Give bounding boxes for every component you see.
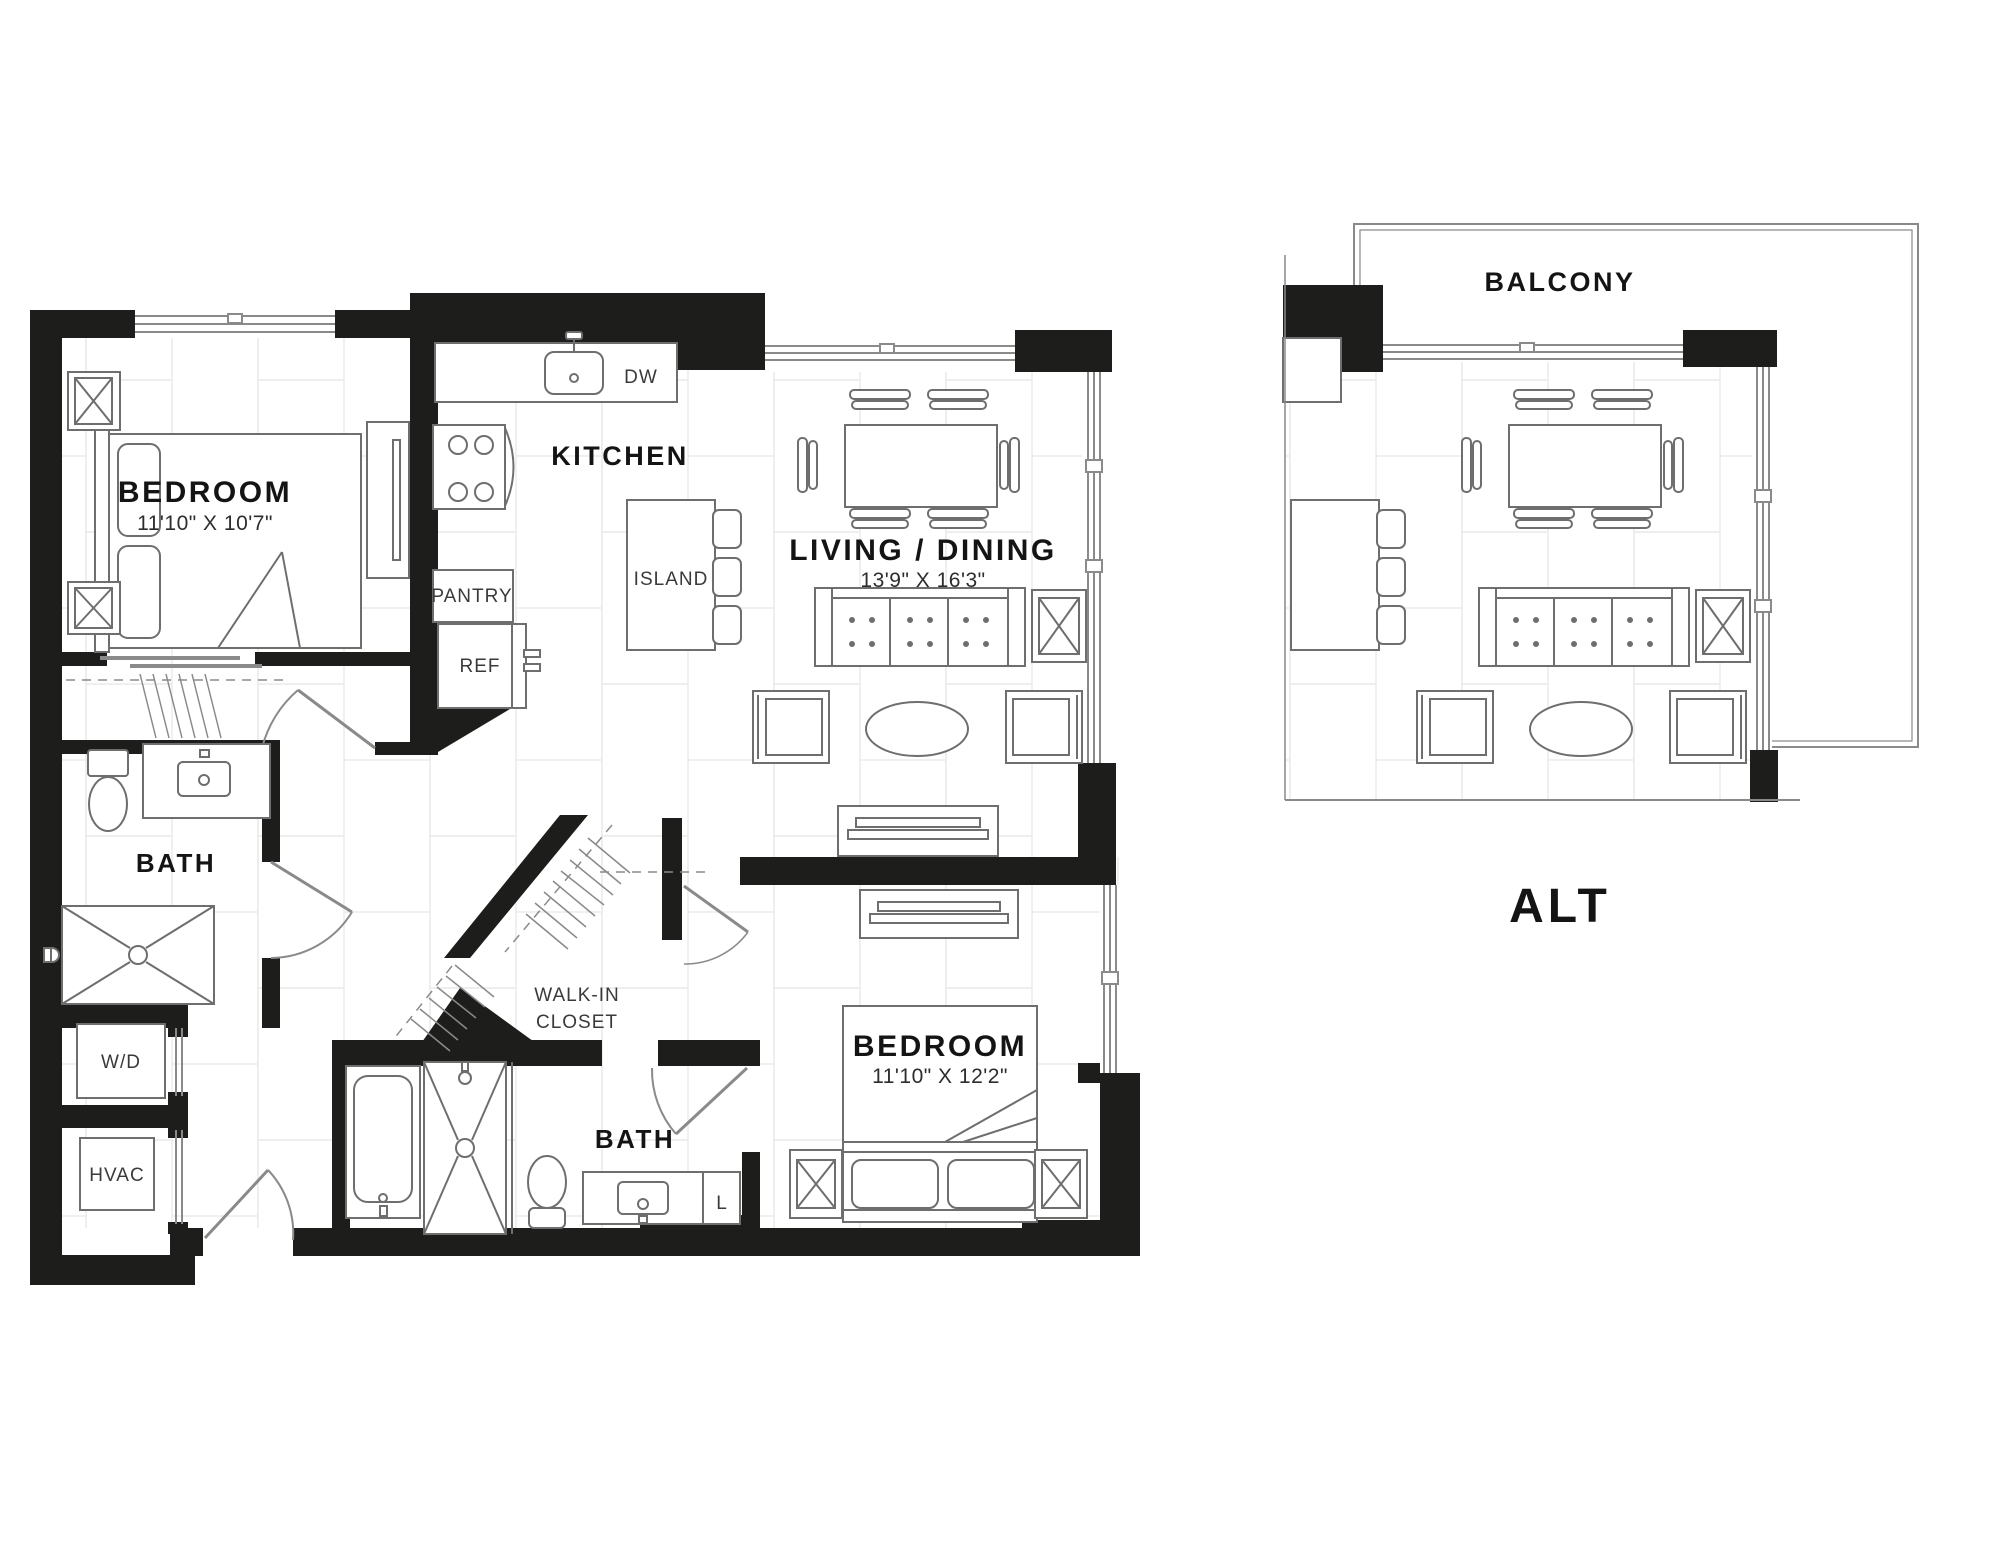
nightstand-icon [1035,1150,1087,1218]
floor-plan-canvas: BEDROOM 11'10" X 10'7" KITCHEN DW ISLAND… [0,0,2000,1554]
walk-in-closet-label-line1: WALK-IN [534,985,619,1006]
bedroom2-dimensions: 11'10" X 12'2" [872,1065,1008,1088]
washer-dryer-label: W/D [101,1052,141,1073]
side-table-icon [1032,590,1086,662]
alt-column [1283,338,1341,402]
kitchen-label: KITCHEN [551,441,689,471]
bath2-label: BATH [595,1124,675,1154]
toilet-icon [528,1156,566,1228]
refrigerator-label: REF [460,656,501,677]
main-floor-plan: BEDROOM 11'10" X 10'7" KITCHEN DW ISLAND… [30,293,1140,1285]
armchair-icon [1670,691,1746,763]
nightstand-icon [68,372,120,430]
tv-console-icon [838,806,998,856]
bedroom1-label: BEDROOM [118,476,292,509]
stove-icon [433,425,514,509]
shower-icon [424,1062,506,1234]
floor-plan-page: BEDROOM 11'10" X 10'7" KITCHEN DW ISLAND… [0,0,2000,1554]
bed-icon [95,430,361,652]
sofa-icon [1479,588,1689,666]
living-dining-label: LIVING / DINING [789,534,1057,567]
island-icon [1291,500,1405,650]
nightstand-icon [790,1150,842,1218]
dishwasher-label: DW [624,367,658,388]
living-top-window [765,340,1015,364]
bath1-label: BATH [136,848,216,878]
alt-caption: ALT [1509,880,1611,933]
wardrobe-icon [367,422,409,578]
nightstand-icon [68,582,120,634]
shower-icon [44,906,214,1004]
linen-label: L [716,1193,728,1214]
dresser-icon [860,890,1018,938]
bedroom2-window [1100,885,1120,1073]
armchair-icon [1006,691,1082,763]
balcony-label: BALCONY [1485,267,1636,297]
island-label: ISLAND [634,569,709,590]
side-table-icon [1696,590,1750,662]
coffee-table-icon [866,702,968,756]
bath1-vanity-sink-icon [143,744,270,818]
bedroom1-window [135,312,335,336]
bathtub-icon [346,1066,420,1218]
coffee-table-icon [1530,702,1632,756]
armchair-icon [753,691,829,763]
living-dining-dimensions: 13'9" X 16'3" [860,569,985,592]
bedroom2-label: BEDROOM [853,1030,1027,1063]
pantry-label: PANTRY [431,586,512,607]
walk-in-closet-label-line2: CLOSET [536,1012,618,1033]
toilet-icon [88,750,128,831]
sofa-icon [815,588,1025,666]
armchair-icon [1417,691,1493,763]
living-right-window [1082,372,1104,763]
bedroom1-dimensions: 11'10" X 10'7" [137,512,273,535]
hvac-label: HVAC [89,1165,144,1186]
